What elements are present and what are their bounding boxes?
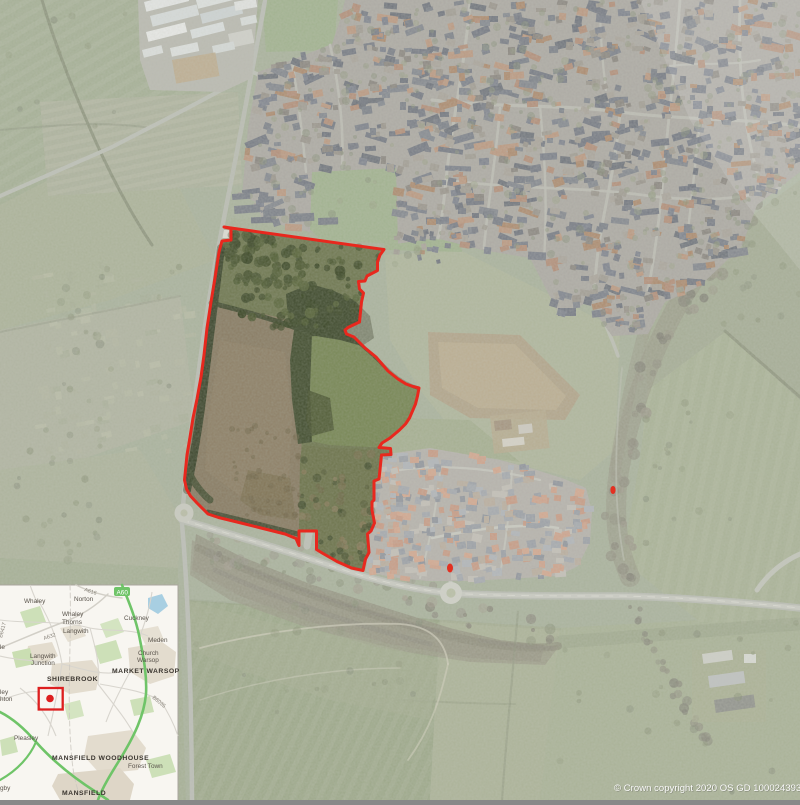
- svg-text:A60: A60: [117, 590, 129, 597]
- svg-text:Norton: Norton: [74, 596, 94, 603]
- svg-text:SHIREBROOK: SHIREBROOK: [47, 676, 98, 683]
- svg-text:gby: gby: [0, 785, 11, 792]
- svg-text:hton: hton: [0, 696, 13, 703]
- svg-text:Langwith: Langwith: [30, 653, 56, 660]
- svg-text:Langwith: Langwith: [63, 628, 89, 635]
- svg-text:MANSFIELD: MANSFIELD: [62, 790, 106, 797]
- svg-text:le: le: [0, 644, 5, 651]
- svg-text:Whaley: Whaley: [24, 598, 46, 605]
- svg-text:Meden: Meden: [148, 637, 168, 644]
- svg-text:Forest Town: Forest Town: [128, 763, 163, 770]
- svg-text:© Crown copyright 2020 OS GD 1: © Crown copyright 2020 OS GD 100024393 ©…: [614, 783, 800, 794]
- svg-text:Whaley: Whaley: [62, 611, 84, 618]
- svg-text:Junction: Junction: [31, 660, 55, 667]
- svg-text:Church: Church: [138, 650, 159, 657]
- svg-text:MANSFIELD WOODHOUSE: MANSFIELD WOODHOUSE: [52, 755, 149, 762]
- svg-text:ley: ley: [0, 689, 9, 696]
- svg-text:Pleasley: Pleasley: [14, 735, 39, 742]
- svg-text:Cuckney: Cuckney: [124, 615, 150, 622]
- svg-text:Thorns: Thorns: [62, 619, 82, 626]
- svg-text:MARKET WARSOP: MARKET WARSOP: [112, 668, 180, 675]
- svg-text:Warsop: Warsop: [137, 657, 159, 664]
